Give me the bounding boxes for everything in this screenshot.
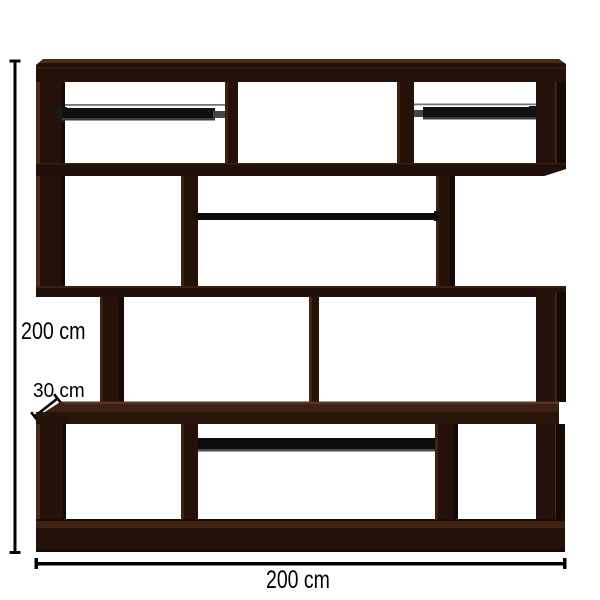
svg-text:200 cm: 200 cm	[266, 566, 330, 594]
svg-text:200 cm: 200 cm	[21, 317, 86, 344]
